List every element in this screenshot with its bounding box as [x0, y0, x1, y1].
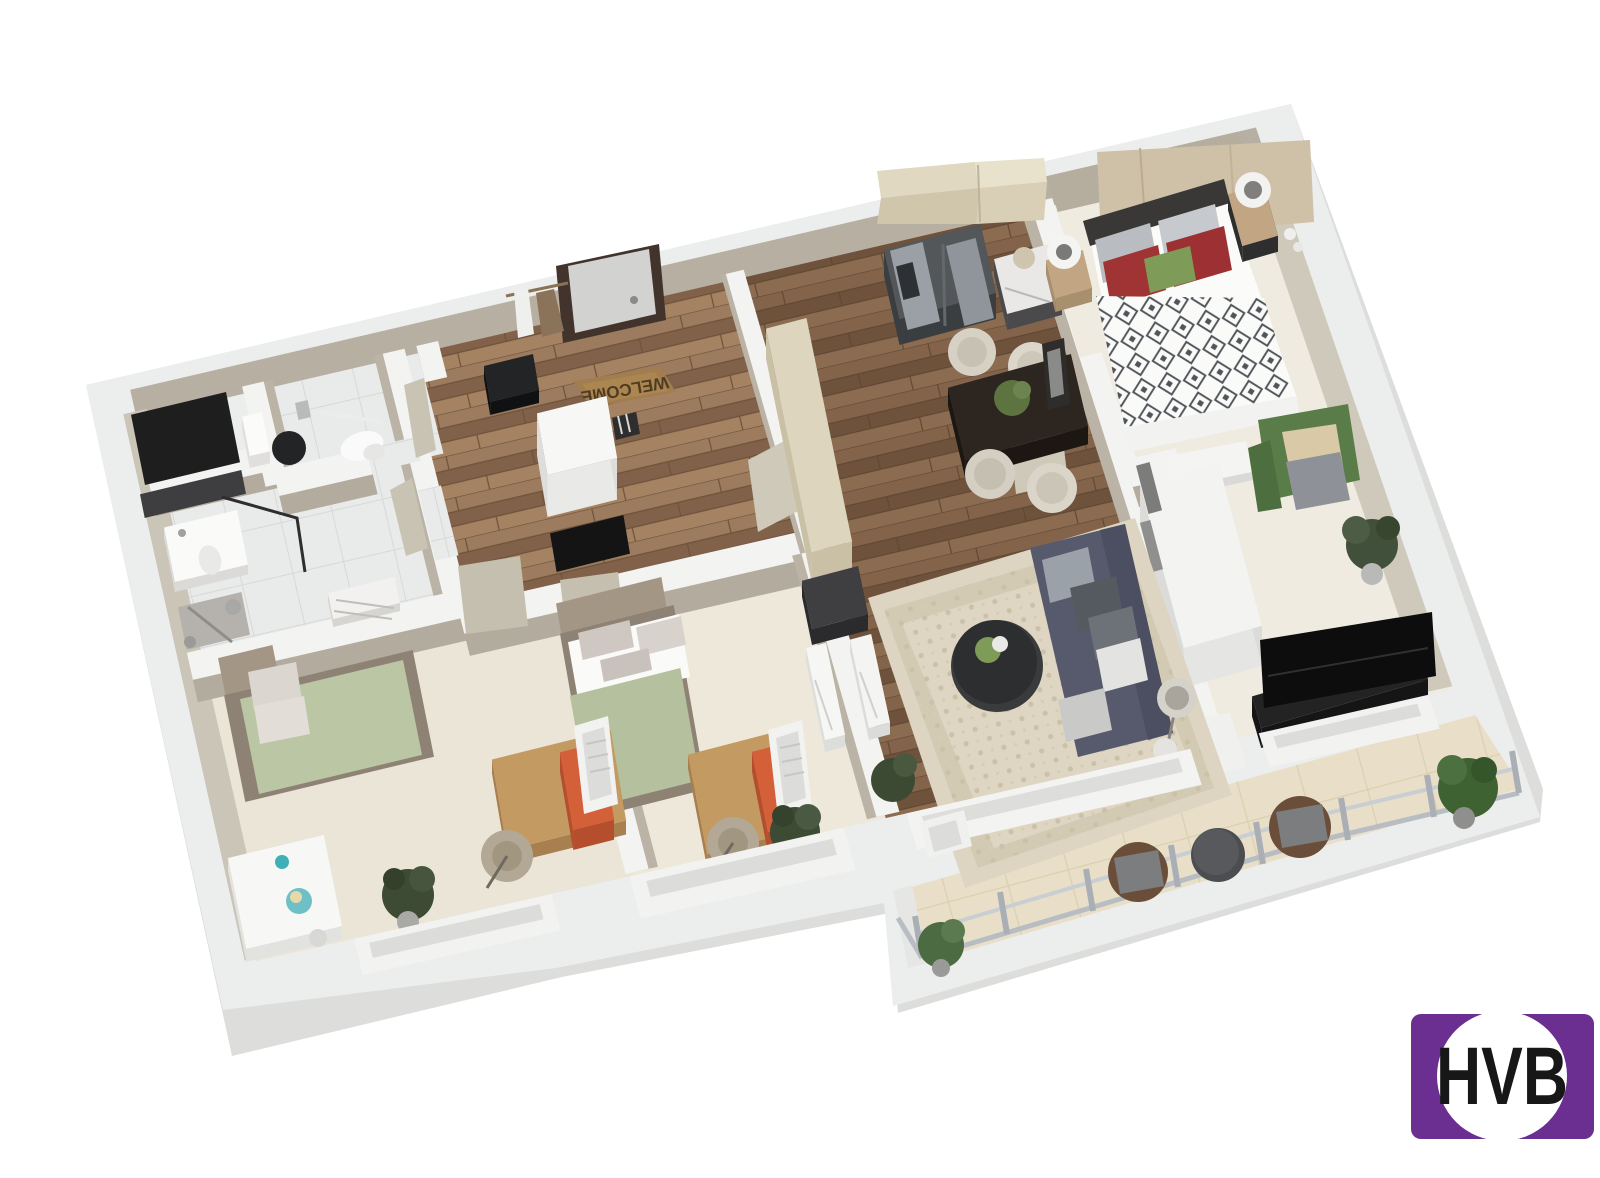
svg-text:HVB: HVB: [1436, 1031, 1568, 1122]
